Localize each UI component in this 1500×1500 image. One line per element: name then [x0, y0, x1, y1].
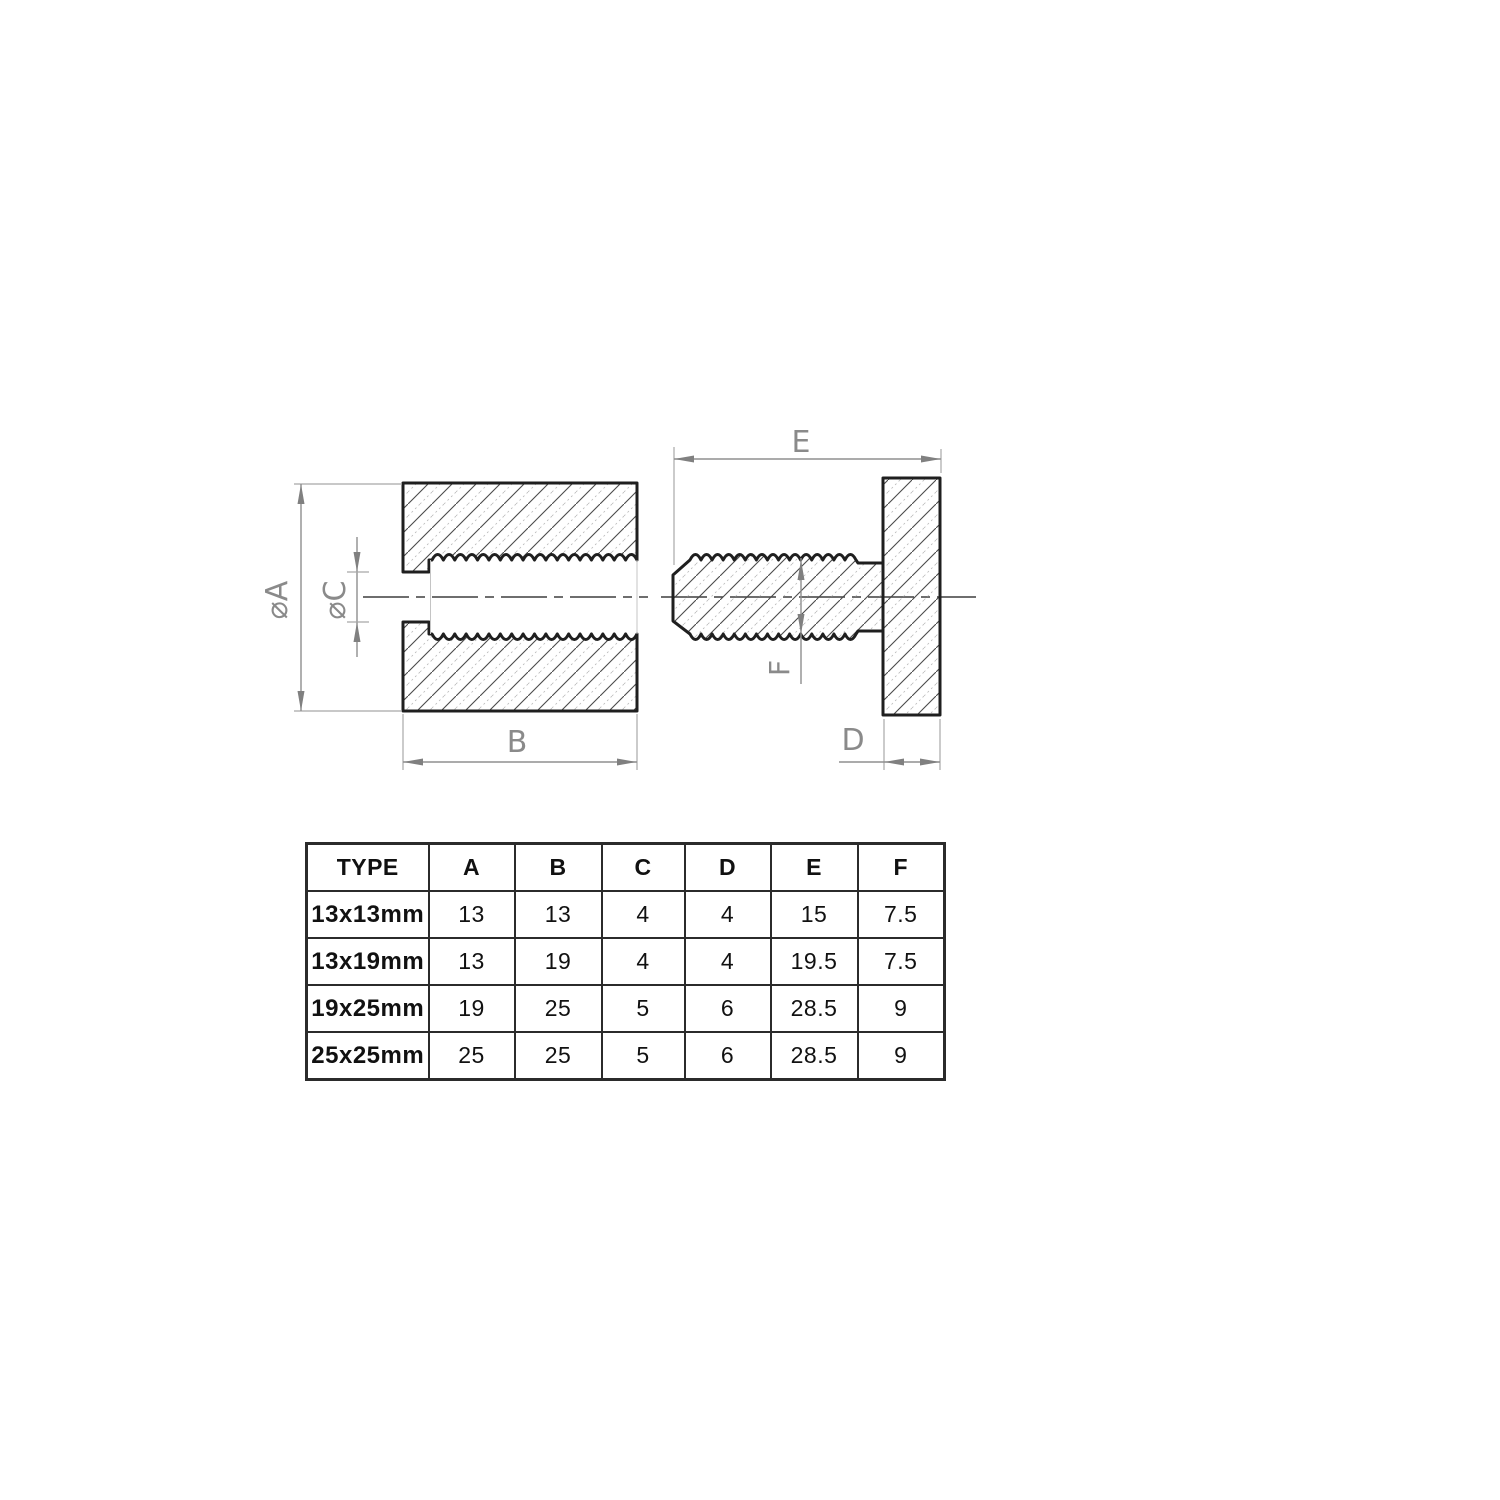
- table-cell: 4: [685, 938, 771, 985]
- table-header-cell: C: [602, 844, 685, 892]
- arrow-up-icon: [298, 484, 305, 504]
- arrow-up-icon: [354, 622, 361, 642]
- table-cell: 15: [771, 891, 858, 938]
- arrow-down-icon: [298, 691, 305, 711]
- table-cell: 6: [685, 985, 771, 1032]
- table-cell: 28.5: [771, 1032, 858, 1080]
- dim-label-f: F: [763, 660, 796, 676]
- dim-label-phi-a: ⌀A: [260, 580, 295, 619]
- technical-drawing: ⌀A ⌀C B E: [0, 0, 1500, 1500]
- table-cell-type: 13x19mm: [307, 938, 429, 985]
- table-cell: 13: [429, 938, 515, 985]
- table-cell: 4: [602, 938, 685, 985]
- table-row: 25x25mm 25 25 5 6 28.5 9: [307, 1032, 945, 1080]
- table-cell: 5: [602, 985, 685, 1032]
- table-row: 13x19mm 13 19 4 4 19.5 7.5: [307, 938, 945, 985]
- table-cell: 28.5: [771, 985, 858, 1032]
- table-header-cell: A: [429, 844, 515, 892]
- table-row: 13x13mm 13 13 4 4 15 7.5: [307, 891, 945, 938]
- table-cell: 25: [515, 1032, 602, 1080]
- dim-label-phi-c: ⌀C: [318, 580, 353, 619]
- table-cell: 7.5: [858, 938, 945, 985]
- table-cell: 9: [858, 1032, 945, 1080]
- table-cell: 25: [515, 985, 602, 1032]
- screw-section: [673, 478, 940, 715]
- table-cell-type: 25x25mm: [307, 1032, 429, 1080]
- table-cell: 5: [602, 1032, 685, 1080]
- arrow-left-icon: [403, 759, 423, 766]
- dimension-d: D: [839, 719, 940, 770]
- table-header-cell: E: [771, 844, 858, 892]
- table-cell: 9: [858, 985, 945, 1032]
- table-header-cell: B: [515, 844, 602, 892]
- table-header-cell: TYPE: [307, 844, 429, 892]
- table-header-cell: F: [858, 844, 945, 892]
- screw-head: [883, 478, 940, 715]
- screw-shank: [673, 555, 883, 640]
- table-cell: 13: [515, 891, 602, 938]
- table-row: 19x25mm 19 25 5 6 28.5 9: [307, 985, 945, 1032]
- table-header-row: TYPE A B C D E F: [307, 844, 945, 892]
- table-cell-type: 19x25mm: [307, 985, 429, 1032]
- table-cell: 13: [429, 891, 515, 938]
- spec-table: TYPE A B C D E F 13x13mm 13 13 4 4 15 7.…: [305, 842, 946, 1081]
- arrow-left-icon: [884, 759, 904, 766]
- sleeve-lower-half: [403, 622, 637, 711]
- table-cell: 6: [685, 1032, 771, 1080]
- arrow-left-icon: [674, 456, 694, 463]
- table-cell: 4: [685, 891, 771, 938]
- dim-label-e: E: [792, 425, 811, 460]
- table-cell: 19: [429, 985, 515, 1032]
- dimension-phi-c: ⌀C: [318, 537, 369, 657]
- table-cell-type: 13x13mm: [307, 891, 429, 938]
- drawing-sheet: ⌀A ⌀C B E: [0, 0, 1500, 1500]
- arrow-down-icon: [354, 552, 361, 572]
- arrow-right-icon: [920, 759, 940, 766]
- arrow-right-icon: [617, 759, 637, 766]
- table-cell: 19: [515, 938, 602, 985]
- dim-label-b: B: [507, 725, 528, 760]
- arrow-right-icon: [921, 456, 941, 463]
- table-cell: 7.5: [858, 891, 945, 938]
- dim-label-d: D: [841, 723, 864, 758]
- table-header-cell: D: [685, 844, 771, 892]
- sleeve-upper-half: [403, 483, 637, 572]
- table-cell: 19.5: [771, 938, 858, 985]
- table-cell: 4: [602, 891, 685, 938]
- table-cell: 25: [429, 1032, 515, 1080]
